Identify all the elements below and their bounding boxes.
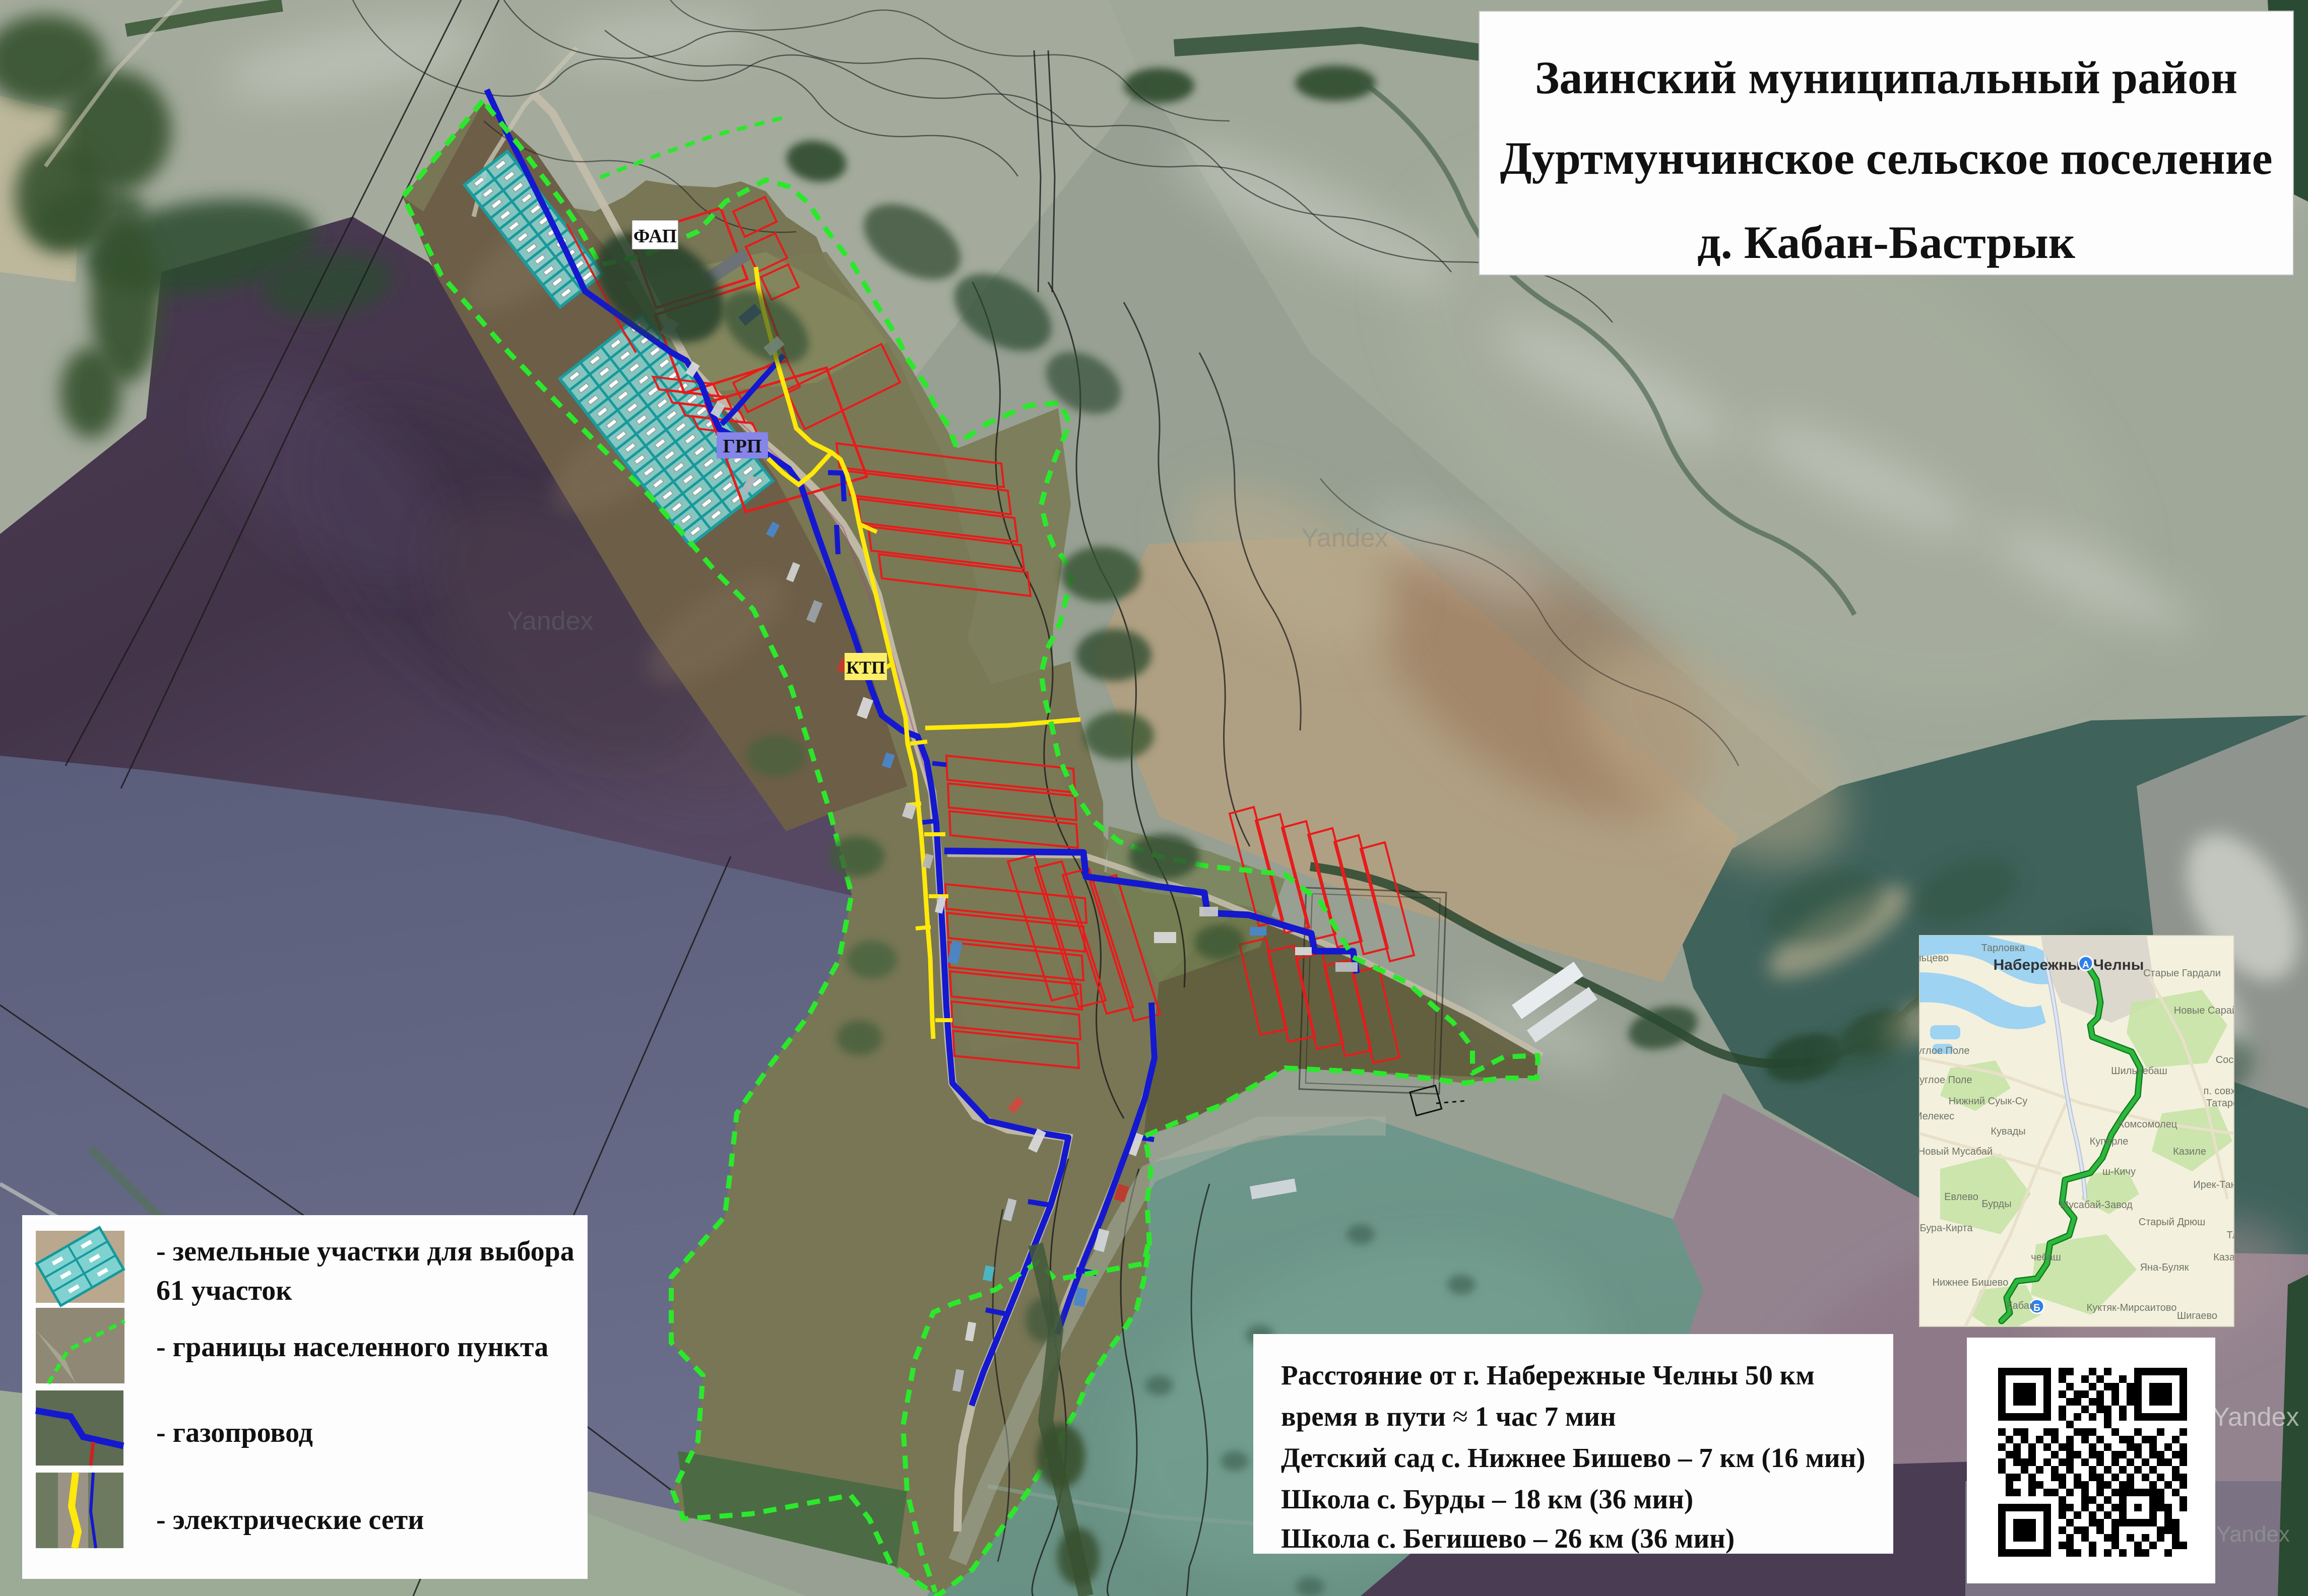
svg-text:Старые Гардали: Старые Гардали (2143, 968, 2221, 979)
svg-text:КТП: КТП (846, 657, 885, 678)
svg-text:- электрические сети: - электрические сети (156, 1504, 424, 1536)
svg-text:Комсомолец: Комсомолец (2119, 1119, 2177, 1130)
svg-text:Расстояние от г. Набережные Че: Расстояние от г. Набережные Челны 50 км (1281, 1360, 1815, 1390)
svg-text:чебаш: чебаш (2031, 1252, 2061, 1263)
svg-text:д. Кабан-Бастрык: д. Кабан-Бастрык (1697, 217, 2075, 268)
svg-text:Кабан: Кабан (2007, 1300, 2035, 1311)
svg-text:Бурды: Бурды (1981, 1199, 2011, 1210)
svg-text:Yandex: Yandex (2212, 1403, 2299, 1432)
svg-text:Заинский муниципальный район: Заинский муниципальный район (1535, 52, 2237, 103)
svg-text:Мелекес: Мелекес (1914, 1111, 1954, 1122)
svg-text:Старый Дрюш: Старый Дрюш (2139, 1217, 2205, 1228)
svg-text:Ирек-Тан: Ирек-Тан (2193, 1179, 2236, 1190)
svg-text:Кувады: Кувады (1991, 1126, 2025, 1137)
svg-text:Бура-Кирта: Бура-Кирта (1920, 1223, 1973, 1234)
svg-text:Яна-Буляк: Яна-Буляк (2140, 1262, 2189, 1273)
svg-text:ГРП: ГРП (723, 436, 762, 457)
svg-text:Куктяк-Мирсаитово: Куктяк-Мирсаитово (2087, 1302, 2177, 1313)
svg-text:Новый Мусабай: Новый Мусабай (1918, 1146, 1993, 1157)
svg-text:Казиле: Казиле (2173, 1146, 2206, 1157)
svg-text:- газопровод: - газопровод (156, 1417, 313, 1448)
svg-text:время в пути ≈ 1 час 7 мин: время в пути ≈ 1 час 7 мин (1281, 1401, 1616, 1432)
svg-text:Нижнее Бишево: Нижнее Бишево (1933, 1277, 2009, 1288)
svg-text:- земельные участки для выбора: - земельные участки для выбора (156, 1236, 574, 1267)
svg-text:Шильнебаш: Шильнебаш (2111, 1066, 2167, 1077)
svg-text:ш-Кичу: ш-Кичу (2102, 1166, 2136, 1177)
svg-text:Евлево: Евлево (1944, 1191, 1978, 1203)
svg-text:А: А (2082, 960, 2089, 970)
svg-text:Yandex: Yandex (2216, 1522, 2290, 1547)
svg-text:Школа с. Бурды – 18 км (36 мин: Школа с. Бурды – 18 км (36 мин) (1281, 1484, 1693, 1514)
svg-text:Школа с. Бегишево – 26 км (36: Школа с. Бегишево – 26 км (36 мин) (1281, 1523, 1735, 1554)
svg-text:Тарловка: Тарловка (1981, 943, 2026, 954)
svg-text:Мусабай-Завод: Мусабай-Завод (2060, 1200, 2133, 1211)
svg-text:Набережные Челны: Набережные Челны (1994, 957, 2144, 973)
svg-text:Дуртмунчинское сельское поселе: Дуртмунчинское сельское поселение (1500, 132, 2272, 184)
svg-text:61 участок: 61 участок (156, 1275, 292, 1306)
svg-text:Куперле: Куперле (2090, 1136, 2129, 1147)
svg-text:Шигаево: Шигаево (2177, 1310, 2217, 1321)
svg-text:Детский сад с. Нижнее Бишево –: Детский сад с. Нижнее Бишево – 7 км (16 … (1281, 1442, 1866, 1473)
svg-text:Yandex: Yandex (1301, 523, 1388, 553)
svg-text:- границы населенного пункта: - границы населенного пункта (156, 1332, 548, 1363)
svg-text:ФАП: ФАП (633, 226, 677, 247)
svg-text:Нижний Суык-Су: Нижний Суык-Су (1949, 1096, 2028, 1107)
svg-text:Yandex: Yandex (506, 607, 594, 636)
